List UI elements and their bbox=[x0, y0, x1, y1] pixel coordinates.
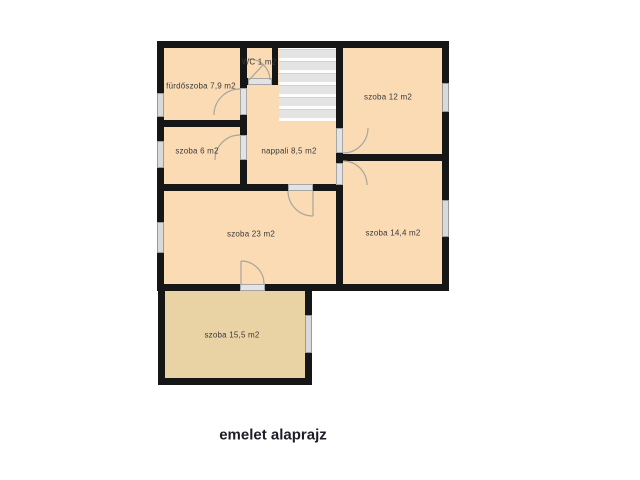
window-room6 bbox=[157, 141, 164, 168]
stair-tread bbox=[279, 49, 336, 58]
wall-extension-bottom bbox=[158, 378, 312, 385]
stair-tread bbox=[279, 85, 336, 94]
window-room155 bbox=[305, 315, 312, 353]
wall-outer-top bbox=[157, 41, 449, 48]
window-bathroom bbox=[157, 93, 164, 117]
stair-tread bbox=[279, 97, 336, 106]
wall-hall-right-upper bbox=[336, 47, 343, 128]
door-room6 bbox=[240, 135, 247, 160]
door-room12 bbox=[336, 128, 343, 153]
room-label-room155: szoba 15,5 m2 bbox=[204, 331, 259, 340]
wall-extension-left bbox=[158, 284, 165, 385]
room-label-room12: szoba 12 m2 bbox=[364, 93, 412, 102]
stair-tread bbox=[279, 109, 336, 118]
room-label-bathroom: fürdőszoba 7,9 m2 bbox=[166, 82, 236, 91]
room-label-room23: szoba 23 m2 bbox=[227, 230, 275, 239]
stair-tread bbox=[279, 73, 336, 82]
door-wc bbox=[248, 78, 272, 85]
room-label-nappali: nappali 8,5 m2 bbox=[261, 147, 316, 156]
floor-plan: fürdőszoba 7,9 m2 WC 1 m2 szoba 12 m2 sz… bbox=[0, 0, 640, 480]
wall-outer-right bbox=[442, 41, 449, 291]
door-hall-room23 bbox=[288, 184, 313, 191]
wall-outer-bottom bbox=[157, 284, 449, 291]
stair-tread bbox=[279, 61, 336, 70]
window-room23 bbox=[157, 222, 164, 253]
window-room12 bbox=[442, 83, 449, 112]
window-room144 bbox=[442, 200, 449, 237]
staircase bbox=[279, 48, 336, 121]
wall-bathroom-room6-divider bbox=[157, 120, 247, 127]
room-label-room6: szoba 6 m2 bbox=[175, 147, 218, 156]
room-label-room144: szoba 14,4 m2 bbox=[365, 229, 420, 238]
door-room144 bbox=[336, 163, 343, 185]
wall-room23-top-left bbox=[157, 184, 288, 191]
plan-title: emelet alaprajz bbox=[219, 427, 327, 444]
wall-room12-room144-divider bbox=[336, 154, 449, 161]
door-room23-room155 bbox=[240, 284, 265, 291]
wall-room23-right bbox=[336, 185, 343, 291]
room-label-wc: WC 1 m2 bbox=[242, 58, 277, 67]
door-bathroom bbox=[240, 88, 247, 115]
